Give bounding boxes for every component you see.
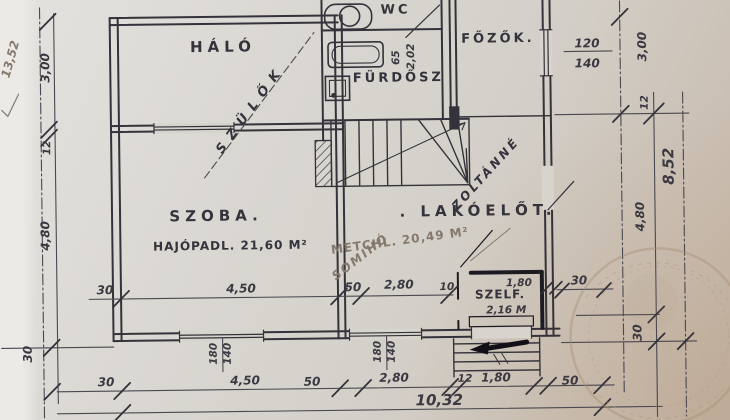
dim-row2-50r: 50 — [562, 373, 579, 387]
washbasin-icon — [324, 4, 371, 30]
dim-right-total: 8,52 — [659, 148, 677, 185]
dim-row2-450: 4,50 — [229, 373, 260, 387]
scan-glow — [400, 100, 730, 420]
win-lako-height: 140 — [386, 341, 398, 363]
room-label-szelf: SZELF. — [475, 287, 525, 302]
scanned-floor-plan-page: HÁLÓ WC FÜRDŐSZ FŐZŐK. SZOBA. HAJÓPADL. … — [0, 0, 730, 420]
win-szoba-height: 140 — [222, 343, 234, 365]
room-label-furdosz: FÜRDŐSZ — [353, 69, 444, 86]
dim-right-480: 4,80 — [633, 202, 647, 233]
boiler-icon — [325, 76, 349, 100]
dim-row2-12: 12 — [458, 373, 473, 385]
szelf-area-value: 2,16 M — [486, 304, 527, 316]
bathtub-icon — [328, 42, 383, 68]
dim-row2-180: 1,80 — [481, 370, 511, 384]
dim-szelf-180: 1,80 — [506, 277, 532, 289]
dim-bath-202: 2,02 — [405, 43, 417, 69]
dim-left-v30: 30 — [21, 346, 35, 363]
staircase — [331, 119, 470, 187]
dim-left-300: 3,00 — [38, 53, 52, 83]
dim-row1-30: 30 — [97, 283, 114, 297]
dim-row2-30: 30 — [98, 375, 115, 389]
szoba-floor-area: HAJÓPADL. 21,60 M² — [153, 237, 308, 254]
floor-plan-drawing: HÁLÓ WC FÜRDŐSZ FŐZŐK. SZOBA. HAJÓPADL. … — [0, 0, 730, 420]
room-label-lakoelot: . LAKÓELŐT. — [399, 199, 556, 221]
room-label-wc: WC — [381, 2, 411, 17]
dim-right-12: 12 — [639, 95, 651, 110]
pencil-check-mark — [2, 94, 19, 116]
dim-left-12: 12 — [41, 140, 53, 155]
win-fozok-width: 120 — [574, 36, 599, 50]
dim-total-1032: 10,32 — [415, 391, 463, 410]
dim-row2-50: 50 — [304, 375, 321, 389]
dim-left-480: 4,80 — [38, 221, 52, 252]
win-lako-width: 180 — [372, 341, 384, 363]
room-label-halo: HÁLÓ — [190, 36, 256, 56]
win-szoba-width: 180 — [208, 343, 220, 365]
dim-row1-50: 50 — [345, 280, 362, 294]
note-szulok: SZÜLŐK — [213, 61, 289, 157]
win-fozok-height: 140 — [575, 56, 600, 70]
dim-right-300: 3,00 — [635, 32, 649, 62]
dim-left-total: 13,52 — [0, 39, 22, 79]
dim-row1-450: 4,50 — [225, 281, 256, 295]
dim-row2-280: 2,80 — [379, 370, 409, 384]
room-label-szoba: SZOBA. — [169, 206, 263, 225]
room-label-fozok: FŐZŐK. — [461, 30, 535, 47]
dim-row1-280: 2,80 — [384, 277, 414, 291]
dim-bath-65: 65 — [390, 50, 402, 65]
dim-row1-30r: 30 — [570, 273, 587, 287]
dim-row1-10: 10 — [440, 281, 455, 293]
